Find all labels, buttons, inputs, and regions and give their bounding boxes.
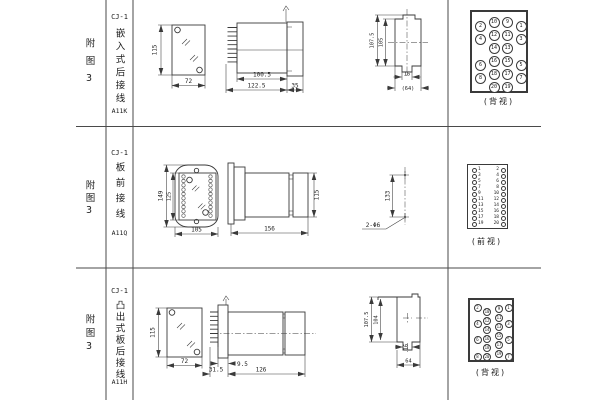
- dim-r3-front-w: 72: [181, 358, 189, 365]
- dim-r1-front-width: 72: [185, 78, 193, 85]
- terminal-block-a11k: 2109141211314136161558181772019: [470, 10, 528, 93]
- terminal-9: 9: [495, 305, 503, 313]
- dim-r3-cut-w1: 16: [404, 344, 410, 350]
- terminal-7: 7: [505, 353, 513, 361]
- terminal-17: 17: [495, 341, 503, 349]
- terminal-15: 15: [502, 56, 513, 67]
- dim-r1-depth-total: 122.5: [247, 83, 265, 90]
- terminal-19: 19: [495, 350, 503, 358]
- figure-label-row3: 附图3: [84, 314, 94, 356]
- dim-r3-d3: 126: [256, 367, 267, 374]
- terminal-14: [501, 204, 506, 209]
- r3-panel-cutout: 107.5 104 16 64: [364, 294, 428, 368]
- terminal-16: 16: [489, 56, 500, 67]
- terminal-1: 1: [505, 304, 513, 312]
- figure-label-row2: 附图3: [84, 180, 94, 219]
- dim-r1-bezel: 35: [291, 83, 299, 90]
- terminal-20: 20: [489, 82, 500, 93]
- dim-r3-cut-h2: 104: [374, 315, 380, 325]
- terminal-14: 14: [483, 326, 491, 334]
- terminal-2: 2: [475, 21, 486, 32]
- dim-r2-front-h1: 149: [158, 190, 165, 201]
- terminal-5: 5: [505, 336, 513, 344]
- dim-r1-cut-w1: 16: [404, 72, 410, 78]
- terminal-19: 19: [502, 82, 513, 93]
- dim-r2-hole-note: 2-Φ6: [366, 222, 381, 229]
- terminal-14: 14: [489, 43, 500, 54]
- terminal-13: 13: [495, 323, 503, 331]
- terminal-19: [472, 222, 477, 227]
- r3-front-view: 115 72: [150, 308, 203, 369]
- figure-label-row1: 附图3: [84, 38, 94, 92]
- dim-r1-cut-h1: 107.5: [370, 33, 376, 49]
- mount-type-row1: 嵌入式后接线: [114, 28, 124, 106]
- terminal-15: 15: [495, 332, 503, 340]
- dim-r1-front-height: 115: [152, 44, 159, 55]
- terminal-11: 11: [502, 30, 513, 41]
- dim-r3-cut-h1: 107.5: [364, 312, 370, 328]
- terminal-12: 12: [483, 317, 491, 325]
- code-label-row1: A11K: [106, 107, 133, 115]
- terminal-17: 17: [502, 69, 513, 80]
- terminal-13: 13: [502, 43, 513, 54]
- terminal-16: [501, 210, 506, 215]
- terminal-2: 2: [474, 304, 482, 312]
- terminal-4: 4: [474, 320, 482, 328]
- terminal-18: 18: [489, 69, 500, 80]
- r3-side-view: 9.5 31.5 126: [203, 296, 316, 377]
- terminal-11: 11: [495, 314, 503, 322]
- terminal-20: 20: [483, 353, 491, 361]
- terminal-10: 10: [489, 17, 500, 28]
- terminal-caption-row3: (背视): [461, 367, 521, 378]
- terminal-6: 6: [474, 336, 482, 344]
- model-label-row3: CJ-1: [106, 287, 133, 295]
- model-label-row1: CJ-1: [106, 13, 133, 21]
- terminal-3: [472, 174, 477, 179]
- page: 115 72 100.5 122.5 35 107.5: [0, 0, 600, 400]
- r2-drill-holes: 133 2-Φ6: [362, 167, 409, 229]
- mount-type-row3: 凸出式板后接线: [114, 300, 124, 381]
- terminal-8: 8: [475, 73, 486, 84]
- dim-r2-side-h: 115: [314, 189, 321, 200]
- r2-front-view: 149 125 105: [158, 165, 219, 237]
- terminal-number-20: 20: [489, 221, 499, 227]
- dim-r1-cut-h2: 105: [379, 38, 385, 48]
- terminal-7: [472, 186, 477, 191]
- terminal-9: [472, 192, 477, 197]
- r1-side-view: 100.5 122.5 35: [226, 6, 303, 93]
- terminal-15: [472, 210, 477, 215]
- terminal-3: 3: [505, 320, 513, 328]
- terminal-block-a11q: 1234567891011121314151617181920: [467, 164, 508, 229]
- terminal-5: [472, 180, 477, 185]
- terminal-5: 5: [516, 60, 527, 71]
- terminal-10: 10: [483, 308, 491, 316]
- dim-r1-cut-w2: (64): [402, 86, 415, 92]
- terminal-8: [501, 186, 506, 191]
- model-label-row2: CJ-1: [106, 149, 133, 157]
- terminal-caption-row1: (背视): [469, 96, 529, 107]
- terminal-4: [501, 174, 506, 179]
- terminal-8: 8: [474, 353, 482, 361]
- terminal-4: 4: [475, 34, 486, 45]
- dim-r2-hole-pitch: 133: [385, 190, 392, 201]
- dim-r3-cut-w2: 64: [405, 359, 411, 365]
- terminal-11: [472, 198, 477, 203]
- terminal-9: 9: [502, 17, 513, 28]
- terminal-caption-row2: (前视): [457, 236, 517, 247]
- terminal-3: 3: [516, 34, 527, 45]
- dim-r2-front-h2: 125: [167, 192, 173, 202]
- terminal-12: [501, 198, 506, 203]
- dim-r2-side-len: 156: [264, 226, 275, 233]
- dim-r3-d1: 31.5: [209, 367, 224, 374]
- dim-r1-depth-body: 100.5: [253, 72, 271, 79]
- terminal-6: 6: [475, 60, 486, 71]
- terminal-2: [501, 168, 506, 173]
- r2-side-view: 156 115: [228, 163, 321, 236]
- code-label-row2: A11Q: [106, 229, 133, 237]
- r1-front-view: 115 72: [152, 25, 206, 89]
- terminal-6: [501, 180, 506, 185]
- terminal-block-a11h: 2109141211314136161551817820197: [468, 298, 514, 362]
- terminal-18: 18: [483, 344, 491, 352]
- code-label-row3: A11H: [106, 378, 133, 386]
- dim-r3-front-h: 115: [150, 327, 157, 338]
- terminal-7: 7: [516, 73, 527, 84]
- terminal-1: 1: [516, 21, 527, 32]
- mount-type-row2: 板前接线: [114, 162, 124, 224]
- terminal-10: [501, 192, 506, 197]
- terminal-1: [472, 168, 477, 173]
- terminal-20: [501, 222, 506, 227]
- terminal-13: [472, 204, 477, 209]
- terminal-17: [472, 216, 477, 221]
- terminal-12: 12: [489, 30, 500, 41]
- terminal-16: 16: [483, 335, 491, 343]
- dim-r3-d2: 9.5: [237, 361, 248, 368]
- terminal-number-19: 19: [478, 221, 488, 227]
- r1-panel-cutout: 107.5 105 16 (64): [370, 9, 430, 92]
- terminal-18: [501, 216, 506, 221]
- dim-r2-front-w: 105: [191, 227, 202, 234]
